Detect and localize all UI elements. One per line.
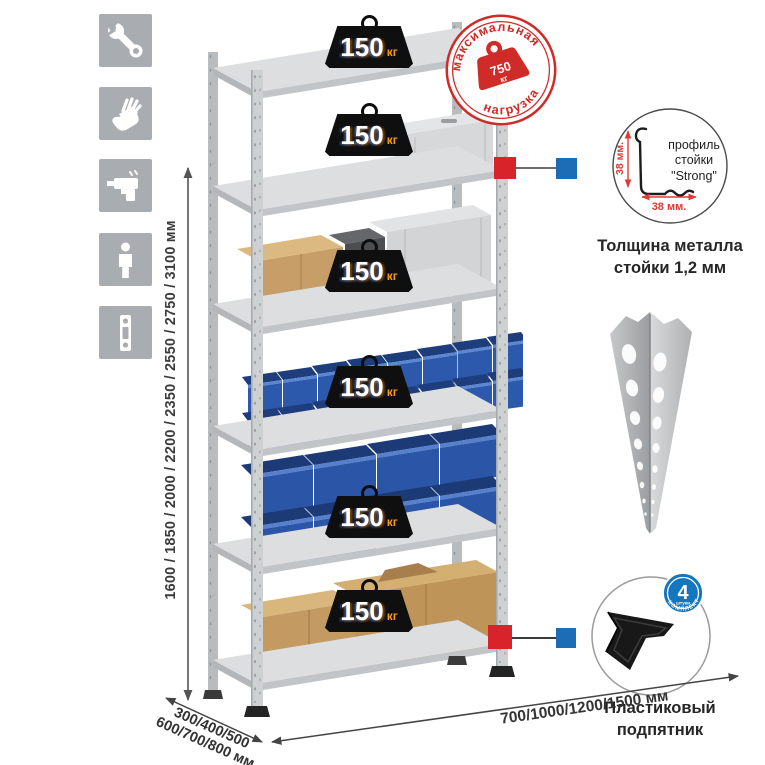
profile-label-3: "Strong": [671, 169, 717, 183]
profile-horizontal-dim: 38 мм.: [652, 201, 687, 213]
width-dimension-line: [272, 676, 738, 742]
weight-body: 150 кг: [325, 496, 413, 538]
weight-body: 150 кг: [325, 114, 413, 156]
profile-caption: Толщина металла стойки 1,2 мм: [590, 236, 750, 280]
gloves-icon: [99, 87, 152, 140]
callout-red-square-top: [494, 157, 516, 179]
callout-red-square-bottom: [488, 625, 512, 649]
weight-body: 150 кг: [325, 366, 413, 408]
badge-unit: штуки: [676, 601, 690, 606]
product-infographic: 1600 / 1850 / 2000 / 2200 / 2350 / 2550 …: [0, 0, 765, 765]
profile-caption-line1: Толщина металла: [590, 236, 750, 258]
gloves-icon-graphic: [99, 87, 152, 140]
weight-body: 150 кг: [325, 250, 413, 292]
depth-dimension-label: 300/400/500 600/700/800 мм: [153, 699, 263, 765]
callout-line-bottom: [510, 637, 560, 639]
shelf-load-badge: 150 кг: [325, 15, 413, 68]
shelf-load-badge: 150 кг: [325, 485, 413, 538]
level-icon: [99, 306, 152, 359]
load-unit: кг: [387, 261, 398, 282]
weight-body: 150 кг: [325, 590, 413, 632]
load-unit: кг: [387, 507, 398, 528]
shelf-load-badge: 150 кг: [325, 239, 413, 292]
person-icon: [99, 233, 152, 286]
quantity-badge: 4 штуки в комплекте: [663, 573, 703, 613]
load-value: 150: [340, 258, 383, 284]
load-unit: кг: [387, 601, 398, 622]
load-value: 150: [340, 504, 383, 530]
callout-line-top: [514, 167, 560, 169]
load-value: 150: [340, 598, 383, 624]
drill-icon-graphic: [99, 159, 152, 212]
shelf-load-badge: 150 кг: [325, 355, 413, 408]
post-profile-detail: 38 мм. 38 мм. профиль стойки "Strong": [606, 103, 736, 233]
load-value: 150: [340, 34, 383, 60]
callout-blue-square-bottom: [556, 628, 576, 648]
profile-caption-line2: стойки 1,2 мм: [590, 258, 750, 280]
profile-vertical-dim: 38 мм.: [614, 142, 626, 175]
angle-post-image: [598, 302, 703, 537]
drill-icon: [99, 159, 152, 212]
weight-body: 150 кг: [325, 26, 413, 68]
load-unit: кг: [387, 125, 398, 146]
load-value: 150: [340, 374, 383, 400]
wrench-icon-graphic: [99, 14, 152, 67]
wrench-icon: [99, 14, 152, 67]
width-dimension-label: 700/1000/1200/1500 мм: [499, 687, 669, 727]
profile-label-2: стойки: [675, 153, 713, 167]
profile-label-1: профиль: [668, 138, 720, 152]
bottom-dimensions: 300/400/500 600/700/800 мм 700/1000/1200…: [130, 660, 760, 765]
load-unit: кг: [387, 377, 398, 398]
shelf-load-badge: 150 кг: [325, 579, 413, 632]
person-icon-graphic: [99, 233, 152, 286]
load-unit: кг: [387, 37, 398, 58]
load-value: 150: [340, 122, 383, 148]
level-icon-graphic: [99, 306, 152, 359]
shelf-load-badge: 150 кг: [325, 103, 413, 156]
callout-blue-square-top: [556, 158, 577, 179]
